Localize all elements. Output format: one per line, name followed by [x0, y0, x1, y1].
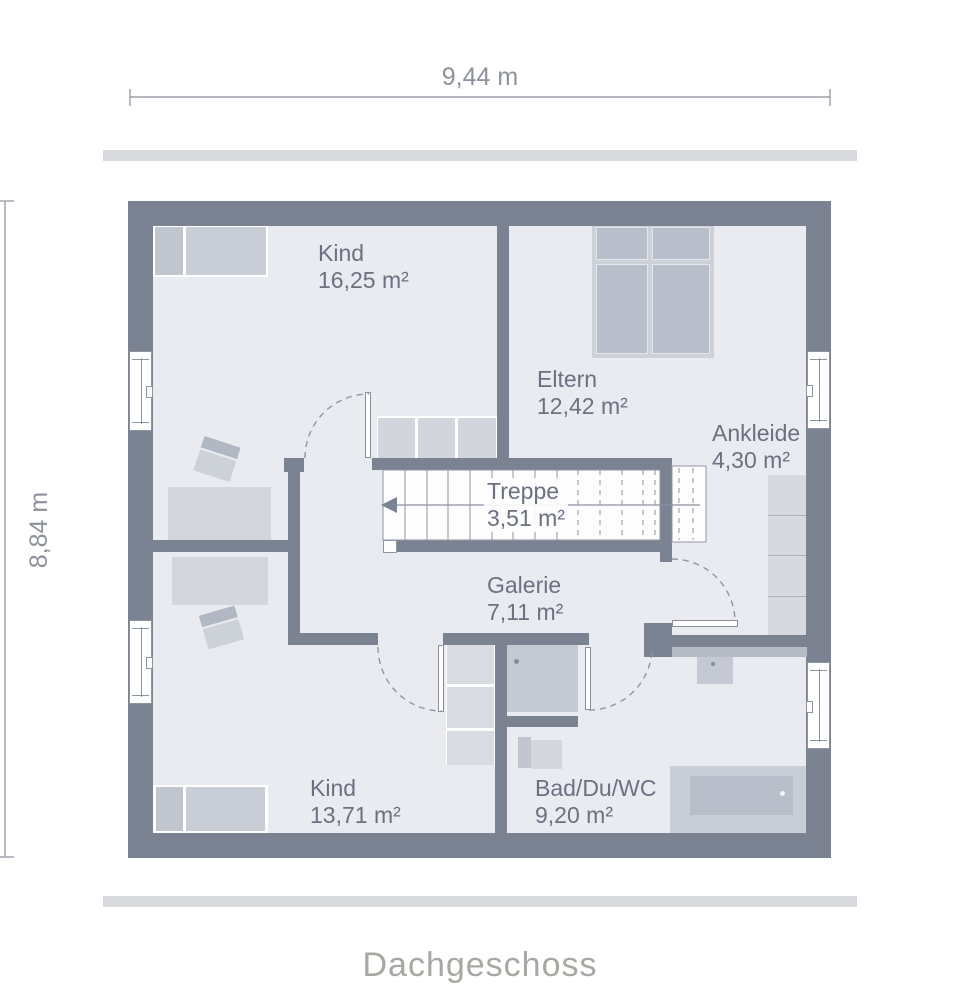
wall-stairs-top	[372, 458, 672, 470]
wall-kind-bad	[495, 633, 507, 840]
bed-eltern	[592, 224, 714, 358]
wardrobe-ankleide	[768, 475, 808, 637]
room-label-eltern: Eltern 12,42 m²	[537, 366, 628, 420]
wardrobe-divider	[768, 555, 808, 556]
door-leaf-bad	[585, 647, 591, 710]
window-frame-line	[141, 627, 142, 697]
wall-shower-south	[507, 716, 578, 727]
window-handle	[806, 701, 813, 713]
wall-kind-divider	[153, 540, 300, 552]
wall-kind-eltern	[497, 226, 509, 458]
bed-body	[186, 227, 266, 275]
floor-plan-canvas: 9,44 m 8,84 m Kind 16,25 m² Eltern 12,42…	[0, 0, 960, 1006]
room-name: Kind	[318, 240, 409, 267]
bed-kind-lower	[153, 785, 268, 835]
sideboard-section	[418, 418, 455, 458]
bed-mattress	[596, 264, 648, 354]
room-area: 3,51 m²	[487, 505, 565, 532]
window-handle	[146, 386, 153, 398]
room-name: Kind	[310, 775, 401, 802]
bed-pillow	[156, 787, 183, 831]
window-frame-line	[810, 359, 827, 360]
wall-kind-lower-top-right	[443, 633, 589, 645]
sideboard-kind-upper	[377, 416, 497, 458]
closet-section	[447, 645, 494, 684]
stair-newel	[383, 540, 397, 553]
window-handle	[806, 385, 813, 397]
bed-pillow	[155, 227, 183, 275]
window-frame-line	[810, 740, 827, 741]
dimension-width-label: 9,44 m	[0, 63, 960, 92]
room-name: Galerie	[487, 572, 563, 599]
window-frame-line	[819, 669, 820, 742]
room-label-galerie: Galerie 7,11 m²	[487, 572, 563, 626]
window-frame-line	[132, 359, 149, 360]
door-leaf-kind-lower	[438, 645, 444, 712]
bed-body	[186, 787, 265, 831]
wall-door-jamb-bad	[644, 623, 672, 657]
sideboard-section	[378, 418, 415, 458]
window-frame-line	[141, 358, 142, 424]
room-label-kind-upper: Kind 16,25 m²	[318, 240, 409, 294]
desk-kind-lower	[172, 557, 268, 605]
bed-pillow	[652, 227, 710, 260]
wall-exterior-bottom	[128, 833, 831, 858]
closet-kind-lower	[446, 645, 495, 765]
wall-kind-lower-top-left	[298, 633, 378, 645]
wc	[518, 737, 531, 768]
bed-pillow	[596, 227, 648, 260]
bathtub-basin	[690, 776, 793, 815]
bathtub	[670, 766, 807, 833]
room-label-kind-lower: Kind 13,71 m²	[310, 775, 401, 829]
room-area: 4,30 m²	[712, 447, 800, 474]
dimension-height-value: 8,84 m	[25, 492, 53, 568]
room-area: 16,25 m²	[318, 267, 409, 294]
window-frame-line	[810, 420, 827, 421]
bottom-accent-bar	[103, 896, 857, 907]
room-name: Ankleide	[712, 420, 800, 447]
dimension-height-label: 8,84 m	[25, 470, 55, 590]
room-label-ankleide: Ankleide 4,30 m²	[712, 420, 800, 474]
floor-title: Dachgeschoss	[0, 946, 960, 985]
sink-faucet	[711, 662, 715, 666]
window-frame-line	[810, 670, 827, 671]
room-name: Treppe	[487, 478, 565, 505]
door-leaf-kind-upper	[365, 392, 371, 458]
top-accent-bar	[103, 150, 857, 161]
wall-exterior-top	[128, 201, 831, 226]
wall-stairs-right	[660, 458, 672, 562]
window-eltern	[807, 351, 830, 429]
sink	[697, 657, 733, 684]
desk-kind-upper	[168, 487, 271, 540]
room-area: 7,11 m²	[487, 599, 563, 626]
dimension-line-height	[0, 201, 14, 857]
dimension-width-value: 9,44 m	[442, 63, 518, 91]
window-frame-line	[132, 422, 149, 423]
window-kind-upper	[129, 351, 152, 431]
window-kind-lower	[129, 620, 152, 704]
window-frame-line	[132, 628, 149, 629]
room-area: 12,42 m²	[537, 393, 628, 420]
wall-stairs-bottom	[397, 540, 660, 552]
bed-mattress	[652, 264, 710, 354]
wardrobe-divider	[768, 596, 808, 597]
window-frame-line	[819, 358, 820, 422]
wall-bad-top	[672, 635, 807, 647]
shower-drain	[514, 659, 519, 664]
window-frame-line	[132, 695, 149, 696]
room-area: 13,71 m²	[310, 802, 401, 829]
bathtub-drain	[780, 791, 785, 796]
room-label-bad: Bad/Du/WC 9,20 m²	[535, 775, 656, 829]
sideboard-section	[458, 418, 496, 458]
room-label-treppe: Treppe 3,51 m²	[484, 478, 568, 532]
room-name: Eltern	[537, 366, 628, 393]
closet-section	[447, 687, 494, 728]
wall-exterior-left	[128, 201, 153, 858]
window-handle	[146, 657, 153, 669]
window-bad	[807, 662, 830, 749]
bed-kind-upper	[153, 225, 268, 277]
shower	[507, 645, 578, 712]
wardrobe-divider	[768, 515, 808, 516]
room-area: 9,20 m²	[535, 802, 656, 829]
wall-exterior-right	[806, 201, 831, 858]
closet-section	[447, 731, 494, 765]
door-leaf-ankleide	[672, 620, 738, 627]
wc-bowl	[531, 740, 562, 769]
wall-bad-top-ledge	[672, 647, 807, 657]
room-name: Bad/Du/WC	[535, 775, 656, 802]
